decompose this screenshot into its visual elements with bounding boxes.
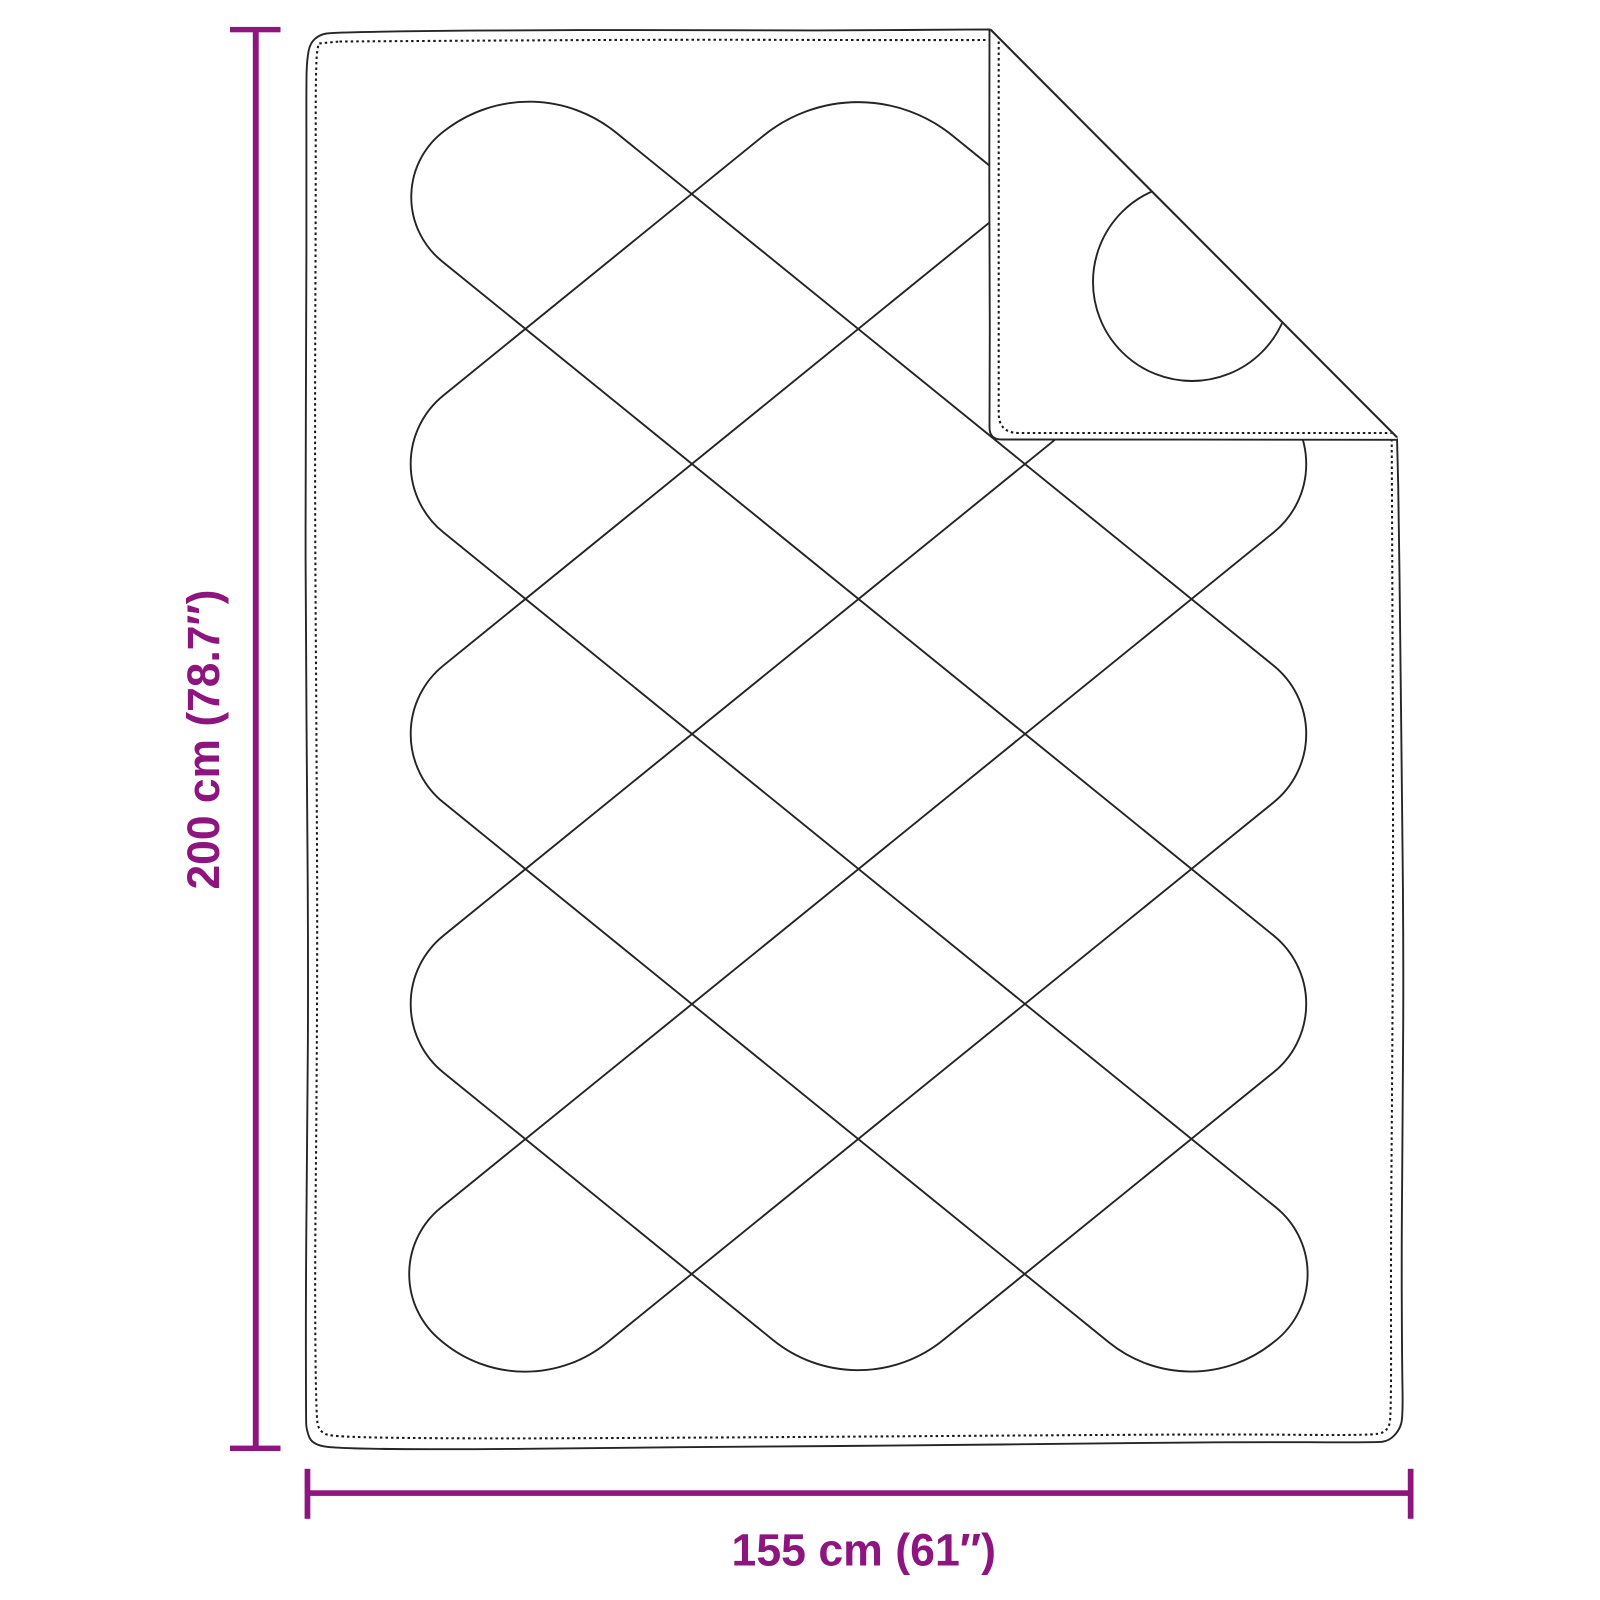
svg-text:200 cm (78.7″): 200 cm (78.7″) — [178, 590, 229, 890]
svg-text:155 cm (61″): 155 cm (61″) — [732, 1525, 997, 1576]
